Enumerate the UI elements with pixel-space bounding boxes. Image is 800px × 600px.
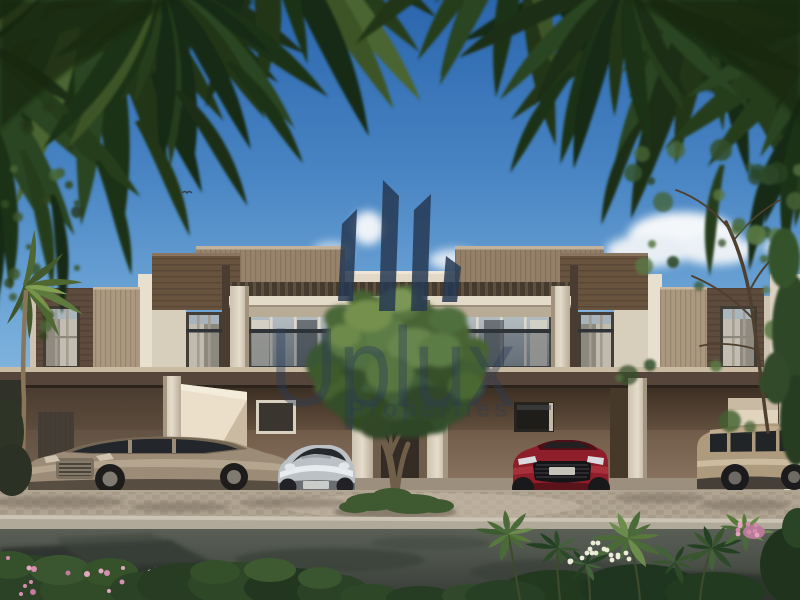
svg-text:Properties: Properties [348, 395, 512, 423]
